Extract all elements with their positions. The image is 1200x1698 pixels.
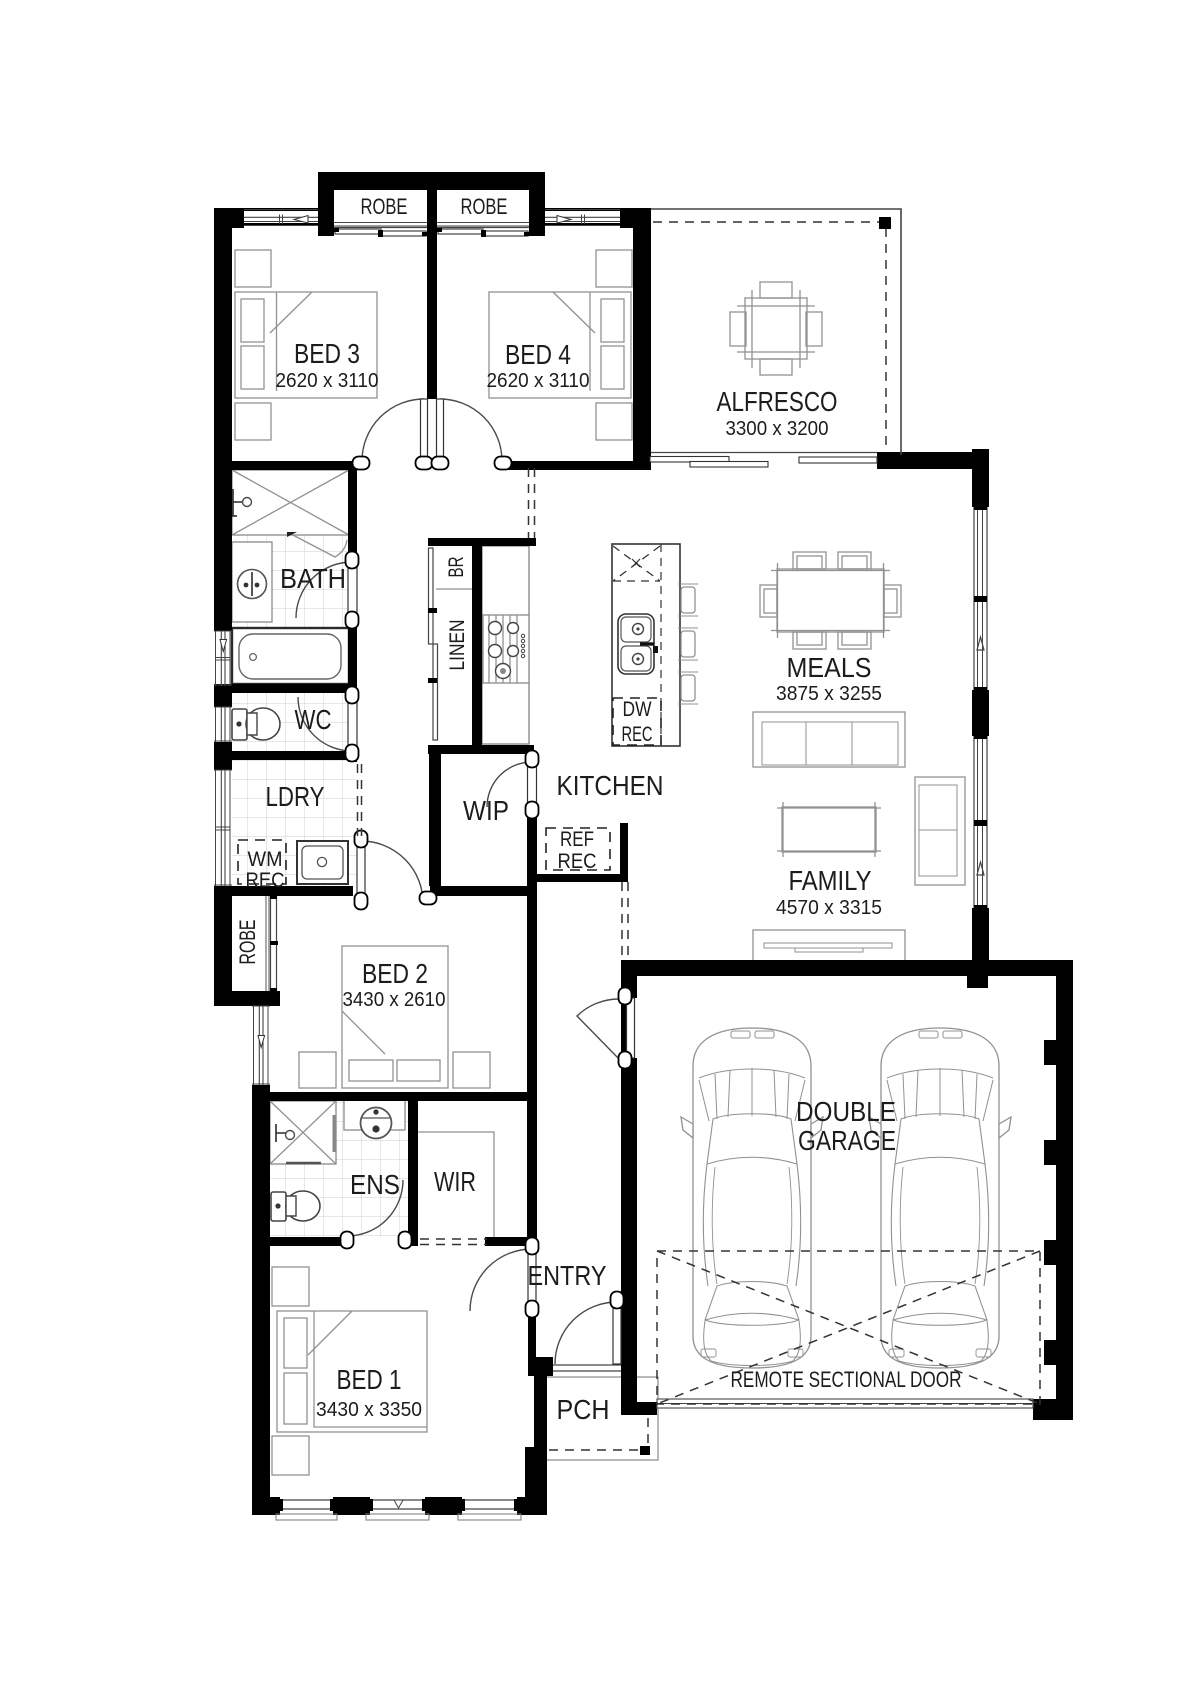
svg-text:BED 2: BED 2	[362, 958, 428, 989]
svg-text:ENS: ENS	[350, 1169, 400, 1200]
svg-text:REC: REC	[558, 850, 597, 873]
svg-text:LDRY: LDRY	[266, 781, 325, 812]
svg-text:BATH: BATH	[280, 563, 346, 594]
svg-text:MEALS: MEALS	[787, 652, 872, 683]
svg-text:BED 3: BED 3	[294, 338, 360, 369]
svg-text:DOUBLE: DOUBLE	[796, 1096, 896, 1127]
svg-text:DW: DW	[623, 698, 652, 721]
svg-text:BED 4: BED 4	[505, 339, 571, 370]
svg-text:2620 x 3110: 2620 x 3110	[487, 370, 590, 392]
svg-text:ROBE: ROBE	[235, 920, 260, 965]
svg-text:REMOTE SECTIONAL DOOR: REMOTE SECTIONAL DOOR	[731, 1367, 962, 1392]
svg-text:3430 x 3350: 3430 x 3350	[316, 1399, 422, 1421]
svg-text:LINEN: LINEN	[446, 620, 469, 671]
svg-text:3875 x 3255: 3875 x 3255	[776, 683, 882, 705]
svg-text:WIP: WIP	[463, 795, 509, 826]
svg-text:REF: REF	[560, 828, 594, 851]
svg-text:GARAGE: GARAGE	[798, 1125, 896, 1156]
svg-text:ROBE: ROBE	[461, 194, 508, 219]
svg-text:REC: REC	[622, 723, 653, 746]
svg-text:BED 1: BED 1	[337, 1364, 402, 1395]
svg-text:WIR: WIR	[434, 1166, 476, 1197]
svg-text:3430 x 2610: 3430 x 2610	[343, 989, 446, 1011]
svg-text:3300 x 3200: 3300 x 3200	[726, 418, 829, 440]
svg-text:WM: WM	[248, 848, 283, 871]
svg-text:KITCHEN: KITCHEN	[557, 770, 664, 801]
svg-text:4570 x 3315: 4570 x 3315	[776, 897, 882, 919]
svg-text:REC: REC	[246, 869, 285, 892]
svg-text:FAMILY: FAMILY	[789, 865, 872, 896]
svg-text:BR: BR	[445, 557, 468, 578]
svg-text:ENTRY: ENTRY	[528, 1260, 607, 1291]
svg-text:ALFRESCO: ALFRESCO	[717, 386, 838, 417]
svg-text:ROBE: ROBE	[361, 194, 408, 219]
svg-text:2620 x 3110: 2620 x 3110	[276, 370, 379, 392]
svg-text:PCH: PCH	[557, 1394, 610, 1425]
svg-text:WC: WC	[295, 704, 332, 735]
